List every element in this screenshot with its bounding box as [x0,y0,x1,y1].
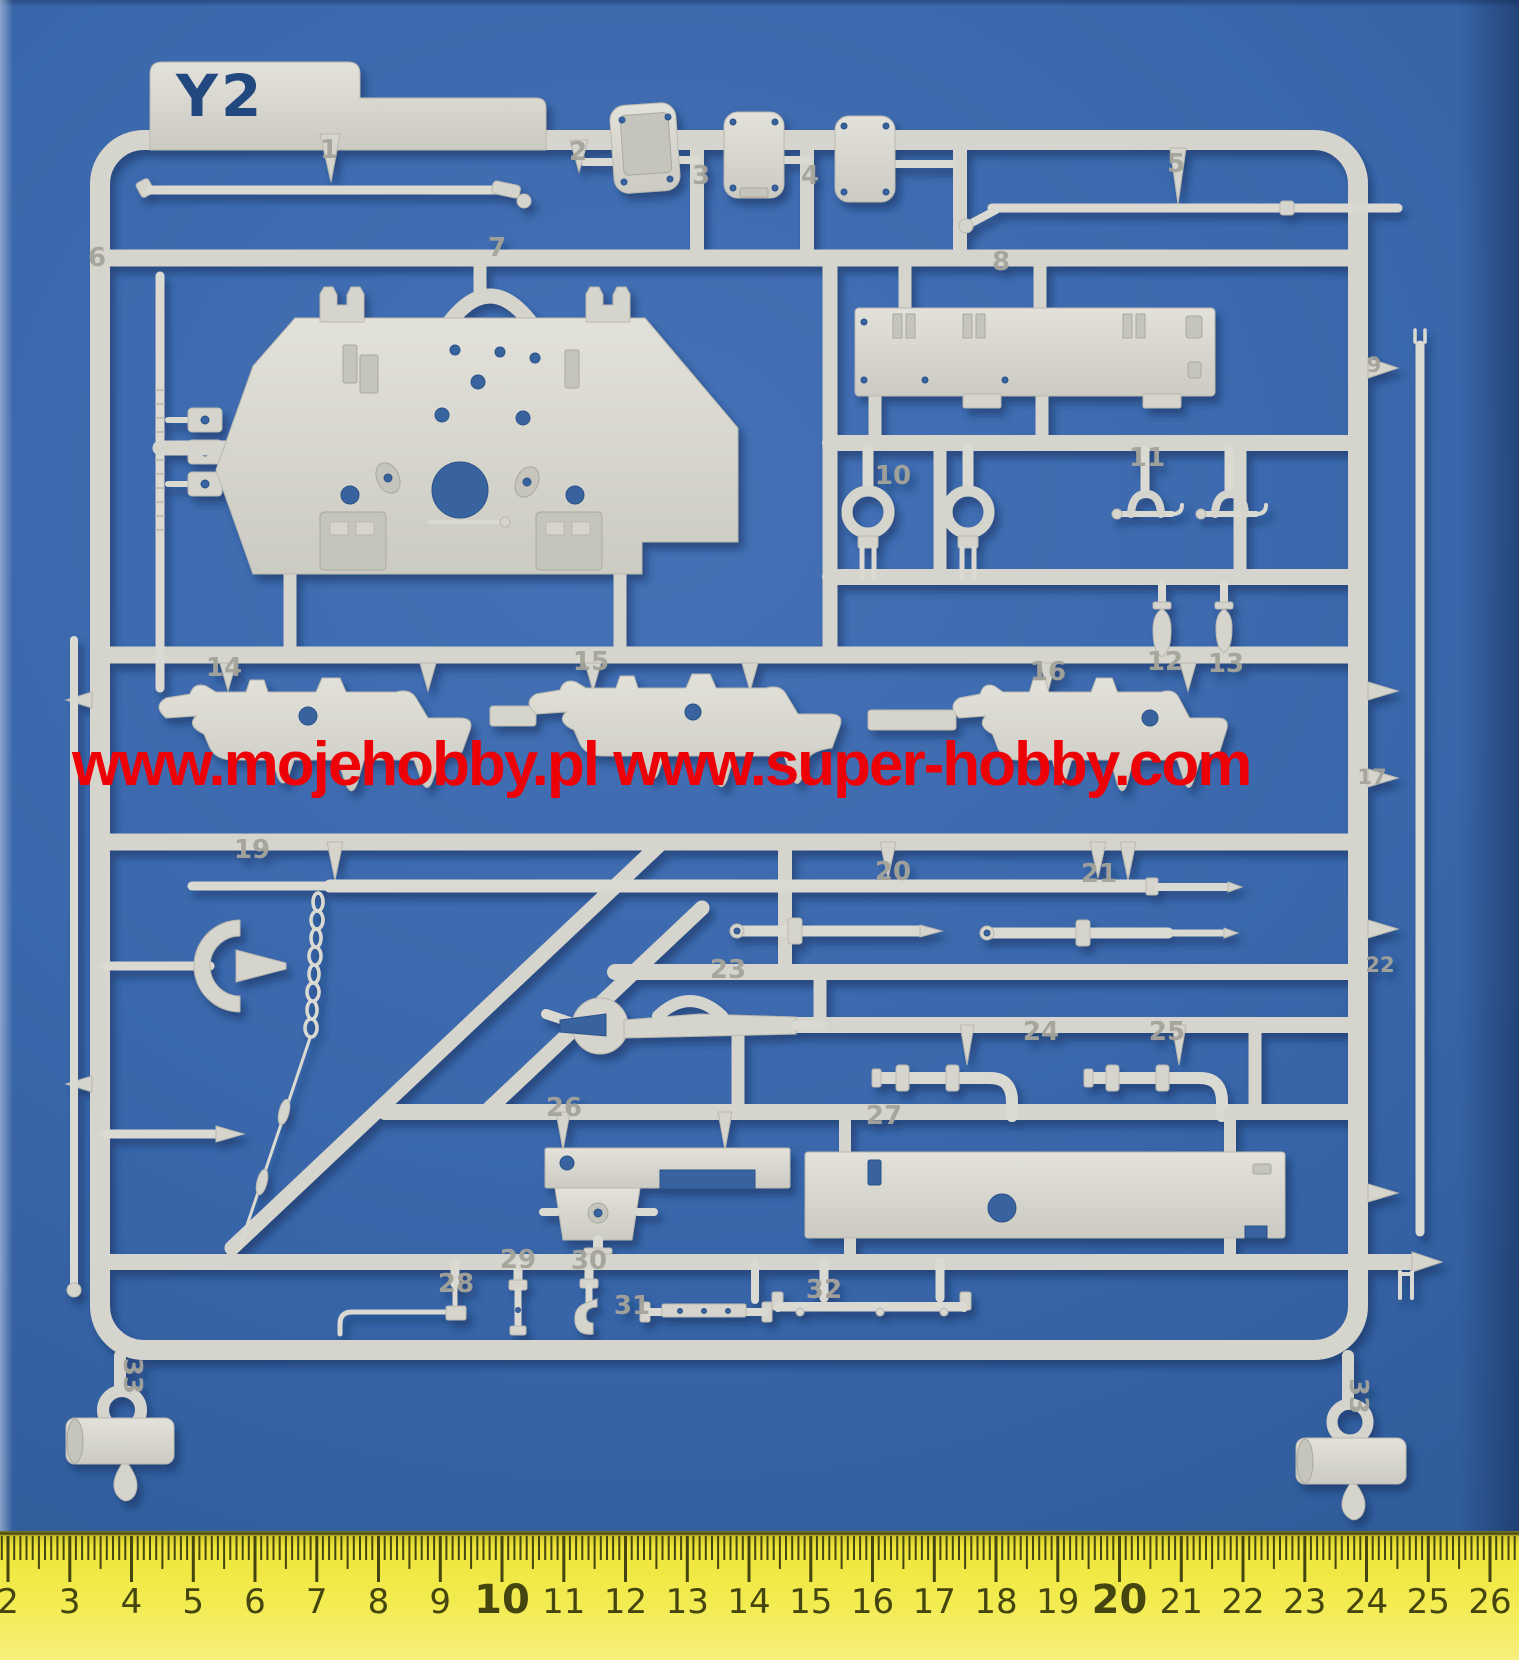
part-27-plate [805,1112,1285,1262]
part-number-8: 8 [992,247,1010,277]
part-number-19: 19 [234,835,270,865]
part-number-25: 25 [1149,1017,1185,1047]
bottom-right-fork [1400,1272,1412,1298]
part-number-3: 3 [692,161,710,191]
ruler-number-17: 17 [913,1582,956,1622]
part-31-bar [640,1262,772,1322]
sprue-label-text: Y2 [175,62,264,130]
ruler-number-7: 7 [306,1582,328,1622]
ruler-number-4: 4 [121,1582,143,1622]
part-number-21: 21 [1081,859,1117,889]
part-number-33: 33 [117,1358,147,1394]
part-number-11: 11 [1129,443,1165,473]
ruler-number-2: 2 [0,1582,19,1622]
ruler-number-21: 21 [1160,1582,1203,1622]
ruler-number-15: 15 [789,1582,832,1622]
ruler-number-16: 16 [851,1582,894,1622]
ruler-number-11: 11 [542,1582,585,1622]
watermark-text: www.mojehobby.pl www.super-hobby.com [72,729,1512,800]
part-number-13: 13 [1208,649,1244,679]
ruler-number-22: 22 [1221,1582,1264,1622]
ruler-number-6: 6 [244,1582,266,1622]
sprue-image: Y2 [0,0,1519,1660]
part-number-10: 10 [875,461,911,491]
part-3-cylinder [724,112,807,198]
part-26-mount [543,1112,790,1262]
ruler: 2345678910111213141516171819202122232425… [0,1531,1519,1660]
part-number-33: 33 [1343,1378,1373,1414]
ruler-number-3: 3 [59,1582,81,1622]
part-number-7: 7 [488,233,506,263]
part-number-4: 4 [801,161,819,191]
part-number-16: 16 [1030,657,1066,687]
part-number-31: 31 [614,1291,650,1321]
part-number-9: 9 [1367,353,1382,377]
ruler-number-23: 23 [1283,1582,1326,1622]
part-number-32: 32 [806,1275,842,1305]
ruler-number-14: 14 [727,1582,770,1622]
part-32-bar [772,1262,971,1316]
part-number-5: 5 [1167,149,1185,179]
part-number-6: 6 [88,243,106,273]
part-23-wrench [546,998,822,1054]
part-number-30: 30 [571,1246,607,1276]
ruler-number-9: 9 [429,1582,451,1622]
part-number-28: 28 [438,1269,474,1299]
ruler-number-25: 25 [1407,1582,1450,1622]
part-number-24: 24 [1023,1017,1059,1047]
part-8-plate [855,308,1215,408]
part-7-hull-plate [160,258,738,655]
ruler-number-19: 19 [1036,1582,1079,1622]
part-number-12: 12 [1147,647,1183,677]
ruler-number-5: 5 [182,1582,204,1622]
ruler-number-20: 20 [1092,1577,1148,1623]
part-6-rod [155,276,222,688]
ruler-number-10: 10 [474,1577,530,1623]
part-number-1: 1 [320,135,338,165]
part-number-15: 15 [573,647,609,677]
ruler-number-12: 12 [604,1582,647,1622]
ruler-number-8: 8 [368,1582,390,1622]
ruler-scale: 2345678910111213141516171819202122232425… [0,1531,1519,1660]
part-number-26: 26 [546,1093,582,1123]
part-number-23: 23 [710,955,746,985]
photo-model-sprue: Y2 [0,0,1519,1660]
sprue-label-tab: Y2 [150,62,546,150]
part-number-27: 27 [866,1101,902,1131]
ruler-number-26: 26 [1468,1582,1511,1622]
part-number-22: 22 [1365,953,1394,977]
part-4-cylinder [835,116,952,202]
part-number-2: 2 [569,137,587,167]
part-number-14: 14 [206,653,242,683]
part-10-shackles [847,450,989,578]
ruler-number-13: 13 [666,1582,709,1622]
ruler-number-24: 24 [1345,1582,1388,1622]
ruler-number-18: 18 [974,1582,1017,1622]
part-number-20: 20 [875,857,911,887]
part-number-29: 29 [500,1245,536,1275]
part-21-rod [980,842,1238,946]
